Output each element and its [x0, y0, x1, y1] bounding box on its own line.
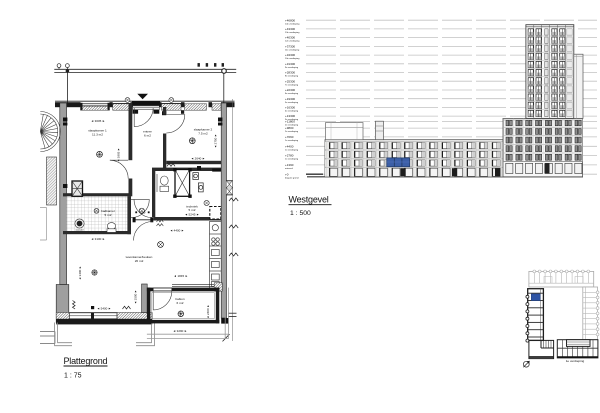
svg-text:◄ 3005 ►: ◄ 3005 ►	[91, 119, 105, 123]
svg-text:1e verdieping: 1e verdieping	[566, 359, 585, 363]
svg-text:◄ 4400 ►: ◄ 4400 ►	[170, 229, 184, 233]
svg-text:Westgevel: Westgevel	[289, 195, 329, 205]
svg-text:◄ 5245 ►: ◄ 5245 ►	[185, 213, 200, 217]
svg-text:26 m2: 26 m2	[135, 259, 144, 263]
svg-text:6 m2: 6 m2	[144, 133, 151, 137]
svg-text:5 m2: 5 m2	[189, 208, 196, 212]
svg-text:+1390: +1390	[285, 163, 294, 167]
svg-text:1000: 1000	[140, 210, 146, 214]
svg-text:1 : 75: 1 : 75	[64, 373, 82, 380]
svg-text:wastafel: wastafel	[75, 229, 84, 232]
svg-text:+2780: +2780	[285, 154, 294, 158]
svg-text:+19300: +19300	[285, 97, 295, 101]
svg-text:11.3 m2: 11.3 m2	[92, 132, 103, 136]
svg-text:begane grond: begane grond	[285, 176, 299, 179]
svg-text:+43300: +43300	[285, 27, 295, 31]
svg-text:13e verdieping: 13e verdieping	[285, 31, 300, 34]
svg-text:11e verdieping: 11e verdieping	[285, 49, 300, 52]
svg-text:12e verdieping: 12e verdieping	[285, 40, 300, 43]
svg-text:5e verdieping: 5e verdieping	[285, 101, 299, 104]
svg-text:+9800: +9800	[285, 126, 294, 130]
svg-text:+7060: +7060	[285, 135, 294, 139]
svg-text:8e verdieping: 8e verdieping	[285, 75, 299, 78]
svg-text:+25300: +25300	[285, 79, 295, 83]
svg-text:◄ 2750 ►: ◄ 2750 ►	[213, 134, 217, 148]
svg-text:2e verdieping: 2e verdieping	[285, 130, 299, 133]
svg-text:◄ 1845 ►: ◄ 1845 ►	[174, 274, 188, 278]
svg-text:◄ 3100 ►: ◄ 3100 ►	[91, 237, 105, 241]
svg-text:+31300: +31300	[285, 62, 295, 66]
svg-text:1e verdieping: 1e verdieping	[285, 148, 299, 151]
svg-text:◄ 3290 ►: ◄ 3290 ►	[173, 329, 187, 333]
svg-text:10e verdieping: 10e verdieping	[285, 57, 300, 60]
svg-text:◄ 1500 ►: ◄ 1500 ►	[134, 290, 138, 304]
svg-text:+11800: +11800	[285, 120, 295, 124]
svg-text:◄ 2640 ►: ◄ 2640 ►	[191, 157, 205, 161]
svg-text:1e verdieping: 1e verdieping	[285, 158, 299, 161]
svg-text:+40300: +40300	[285, 36, 295, 40]
svg-text:6e verdieping: 6e verdieping	[285, 92, 299, 95]
svg-text:+28300: +28300	[285, 71, 295, 75]
svg-text:7.5 m2: 7.5 m2	[198, 131, 208, 135]
svg-text:◄ 3400 ►: ◄ 3400 ►	[78, 266, 82, 280]
svg-text:+0: +0	[285, 172, 289, 176]
svg-text:6 m2: 6 m2	[177, 301, 184, 305]
svg-text:Plattegrond: Plattegrond	[64, 356, 108, 366]
svg-text:◄ 3965 ►: ◄ 3965 ►	[117, 148, 121, 162]
svg-text:5 m2: 5 m2	[105, 213, 112, 217]
svg-text:1e verdieping: 1e verdieping	[285, 139, 299, 142]
svg-text:14e verdieping: 14e verdieping	[285, 22, 300, 25]
svg-text:+37300: +37300	[285, 45, 295, 49]
svg-text:+16300: +16300	[285, 106, 295, 110]
svg-text:◄ 2400 ►: ◄ 2400 ►	[206, 305, 210, 319]
svg-text:entresol: entresol	[285, 167, 293, 170]
svg-text:+4400: +4400	[285, 144, 294, 148]
svg-text:+22300: +22300	[285, 88, 295, 92]
svg-text:+34300: +34300	[285, 53, 295, 57]
svg-text:◄ 5400 ►: ◄ 5400 ►	[97, 307, 111, 311]
svg-text:9e verdieping: 9e verdieping	[285, 66, 299, 69]
svg-text:+46800: +46800	[285, 18, 295, 22]
svg-text:7e verdieping: 7e verdieping	[285, 83, 299, 86]
svg-text:+13300: +13300	[285, 114, 295, 118]
svg-text:4e verdieping: 4e verdieping	[285, 110, 299, 113]
svg-text:1 : 500: 1 : 500	[290, 210, 311, 217]
